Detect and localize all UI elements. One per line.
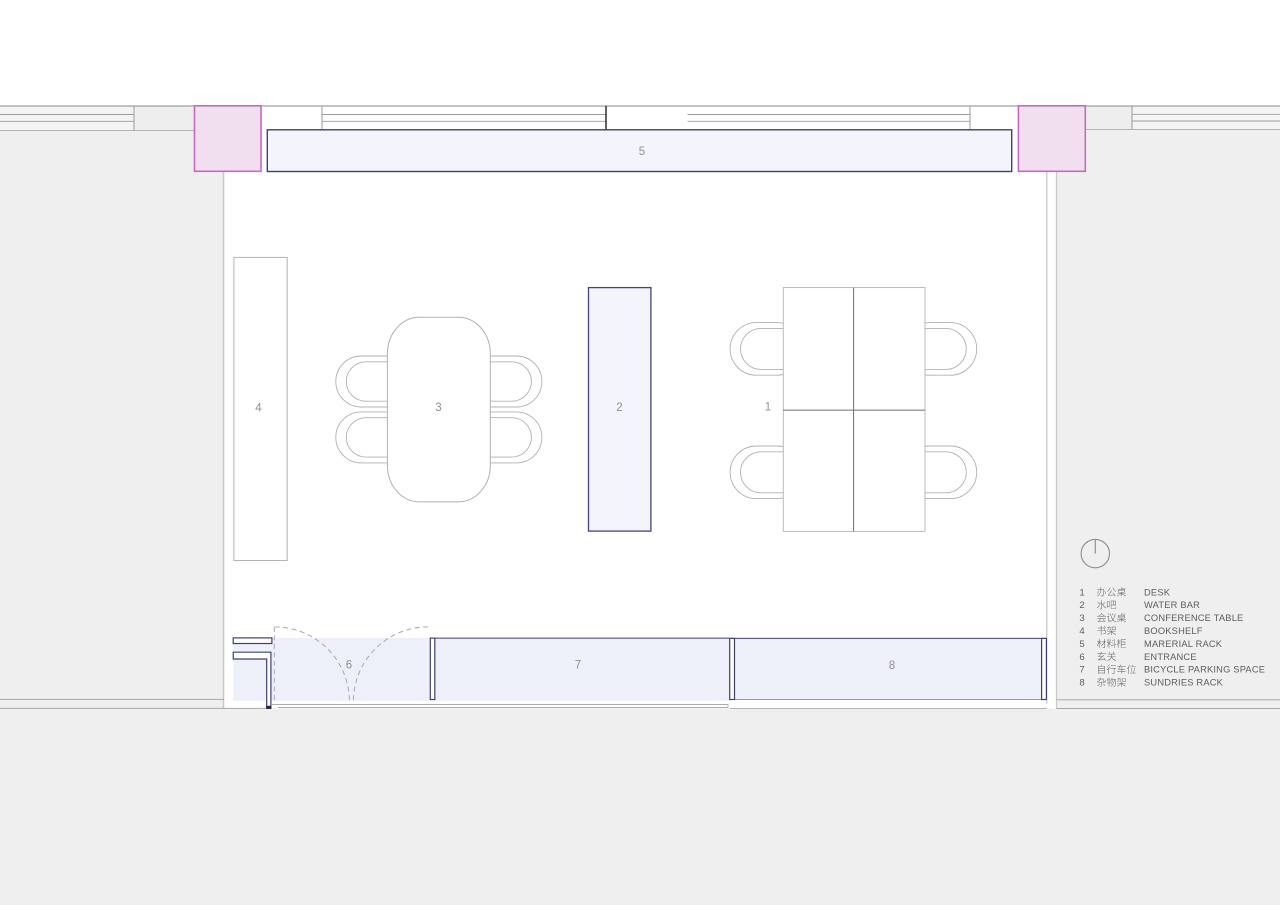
svg-text:CONFERENCE TABLE: CONFERENCE TABLE [1144,613,1243,623]
svg-text:4: 4 [255,403,262,415]
svg-text:7: 7 [1079,665,1084,676]
svg-text:8: 8 [889,660,895,672]
svg-text:BICYCLE PARKING SPACE: BICYCLE PARKING SPACE [1144,665,1265,675]
svg-text:6: 6 [1079,652,1084,663]
svg-text:1: 1 [765,402,771,414]
svg-text:7: 7 [575,660,581,672]
svg-text:2: 2 [616,402,622,414]
svg-text:5: 5 [639,146,645,158]
svg-text:3: 3 [1079,613,1084,624]
svg-text:8: 8 [1079,678,1084,689]
svg-text:WATER BAR: WATER BAR [1144,600,1200,610]
svg-text:6: 6 [346,660,352,672]
svg-text:5: 5 [1079,639,1084,650]
svg-text:3: 3 [435,402,441,414]
svg-text:1: 1 [1079,587,1084,598]
svg-text:DESK: DESK [1144,587,1171,597]
svg-text:2: 2 [1079,600,1084,611]
svg-text:ENTRANCE: ENTRANCE [1144,652,1197,662]
svg-text:4: 4 [1079,626,1085,637]
svg-text:BOOKSHELF: BOOKSHELF [1144,626,1203,636]
svg-text:MARERIAL RACK: MARERIAL RACK [1144,639,1223,649]
svg-text:SUNDRIES RACK: SUNDRIES RACK [1144,678,1224,688]
